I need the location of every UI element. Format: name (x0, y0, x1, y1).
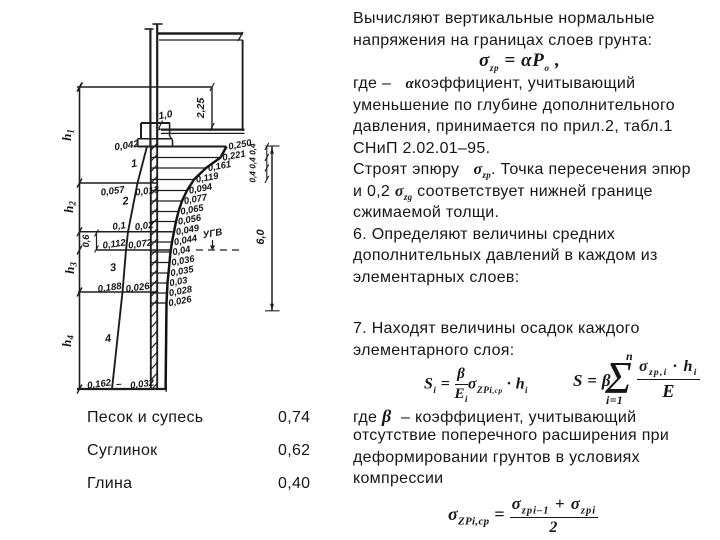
svg-text:2: 2 (121, 195, 130, 208)
svg-text:–: – (116, 379, 123, 390)
svg-text:4: 4 (103, 333, 112, 346)
svg-text:0,1: 0,1 (112, 220, 127, 233)
svg-text:6,0: 6,0 (255, 228, 267, 244)
svg-text:1: 1 (130, 158, 138, 171)
svg-text:0,042: 0,042 (114, 139, 140, 153)
svg-text:2,25: 2,25 (195, 98, 207, 120)
svg-text:0,6: 0,6 (81, 234, 91, 248)
svg-text:h4: h4 (59, 335, 76, 347)
svg-text:0,026: 0,026 (125, 281, 151, 295)
svg-text:УГВ: УГВ (202, 227, 223, 241)
svg-text:1,0: 1,0 (158, 109, 174, 122)
svg-text:h3: h3 (62, 262, 79, 274)
svg-text:0,188: 0,188 (97, 281, 123, 295)
svg-text:h1: h1 (59, 129, 76, 141)
svg-text:0,4 0,4 0,4: 0,4 0,4 0,4 (248, 143, 258, 183)
svg-text:h2: h2 (61, 201, 78, 213)
svg-text:3: 3 (109, 262, 117, 275)
